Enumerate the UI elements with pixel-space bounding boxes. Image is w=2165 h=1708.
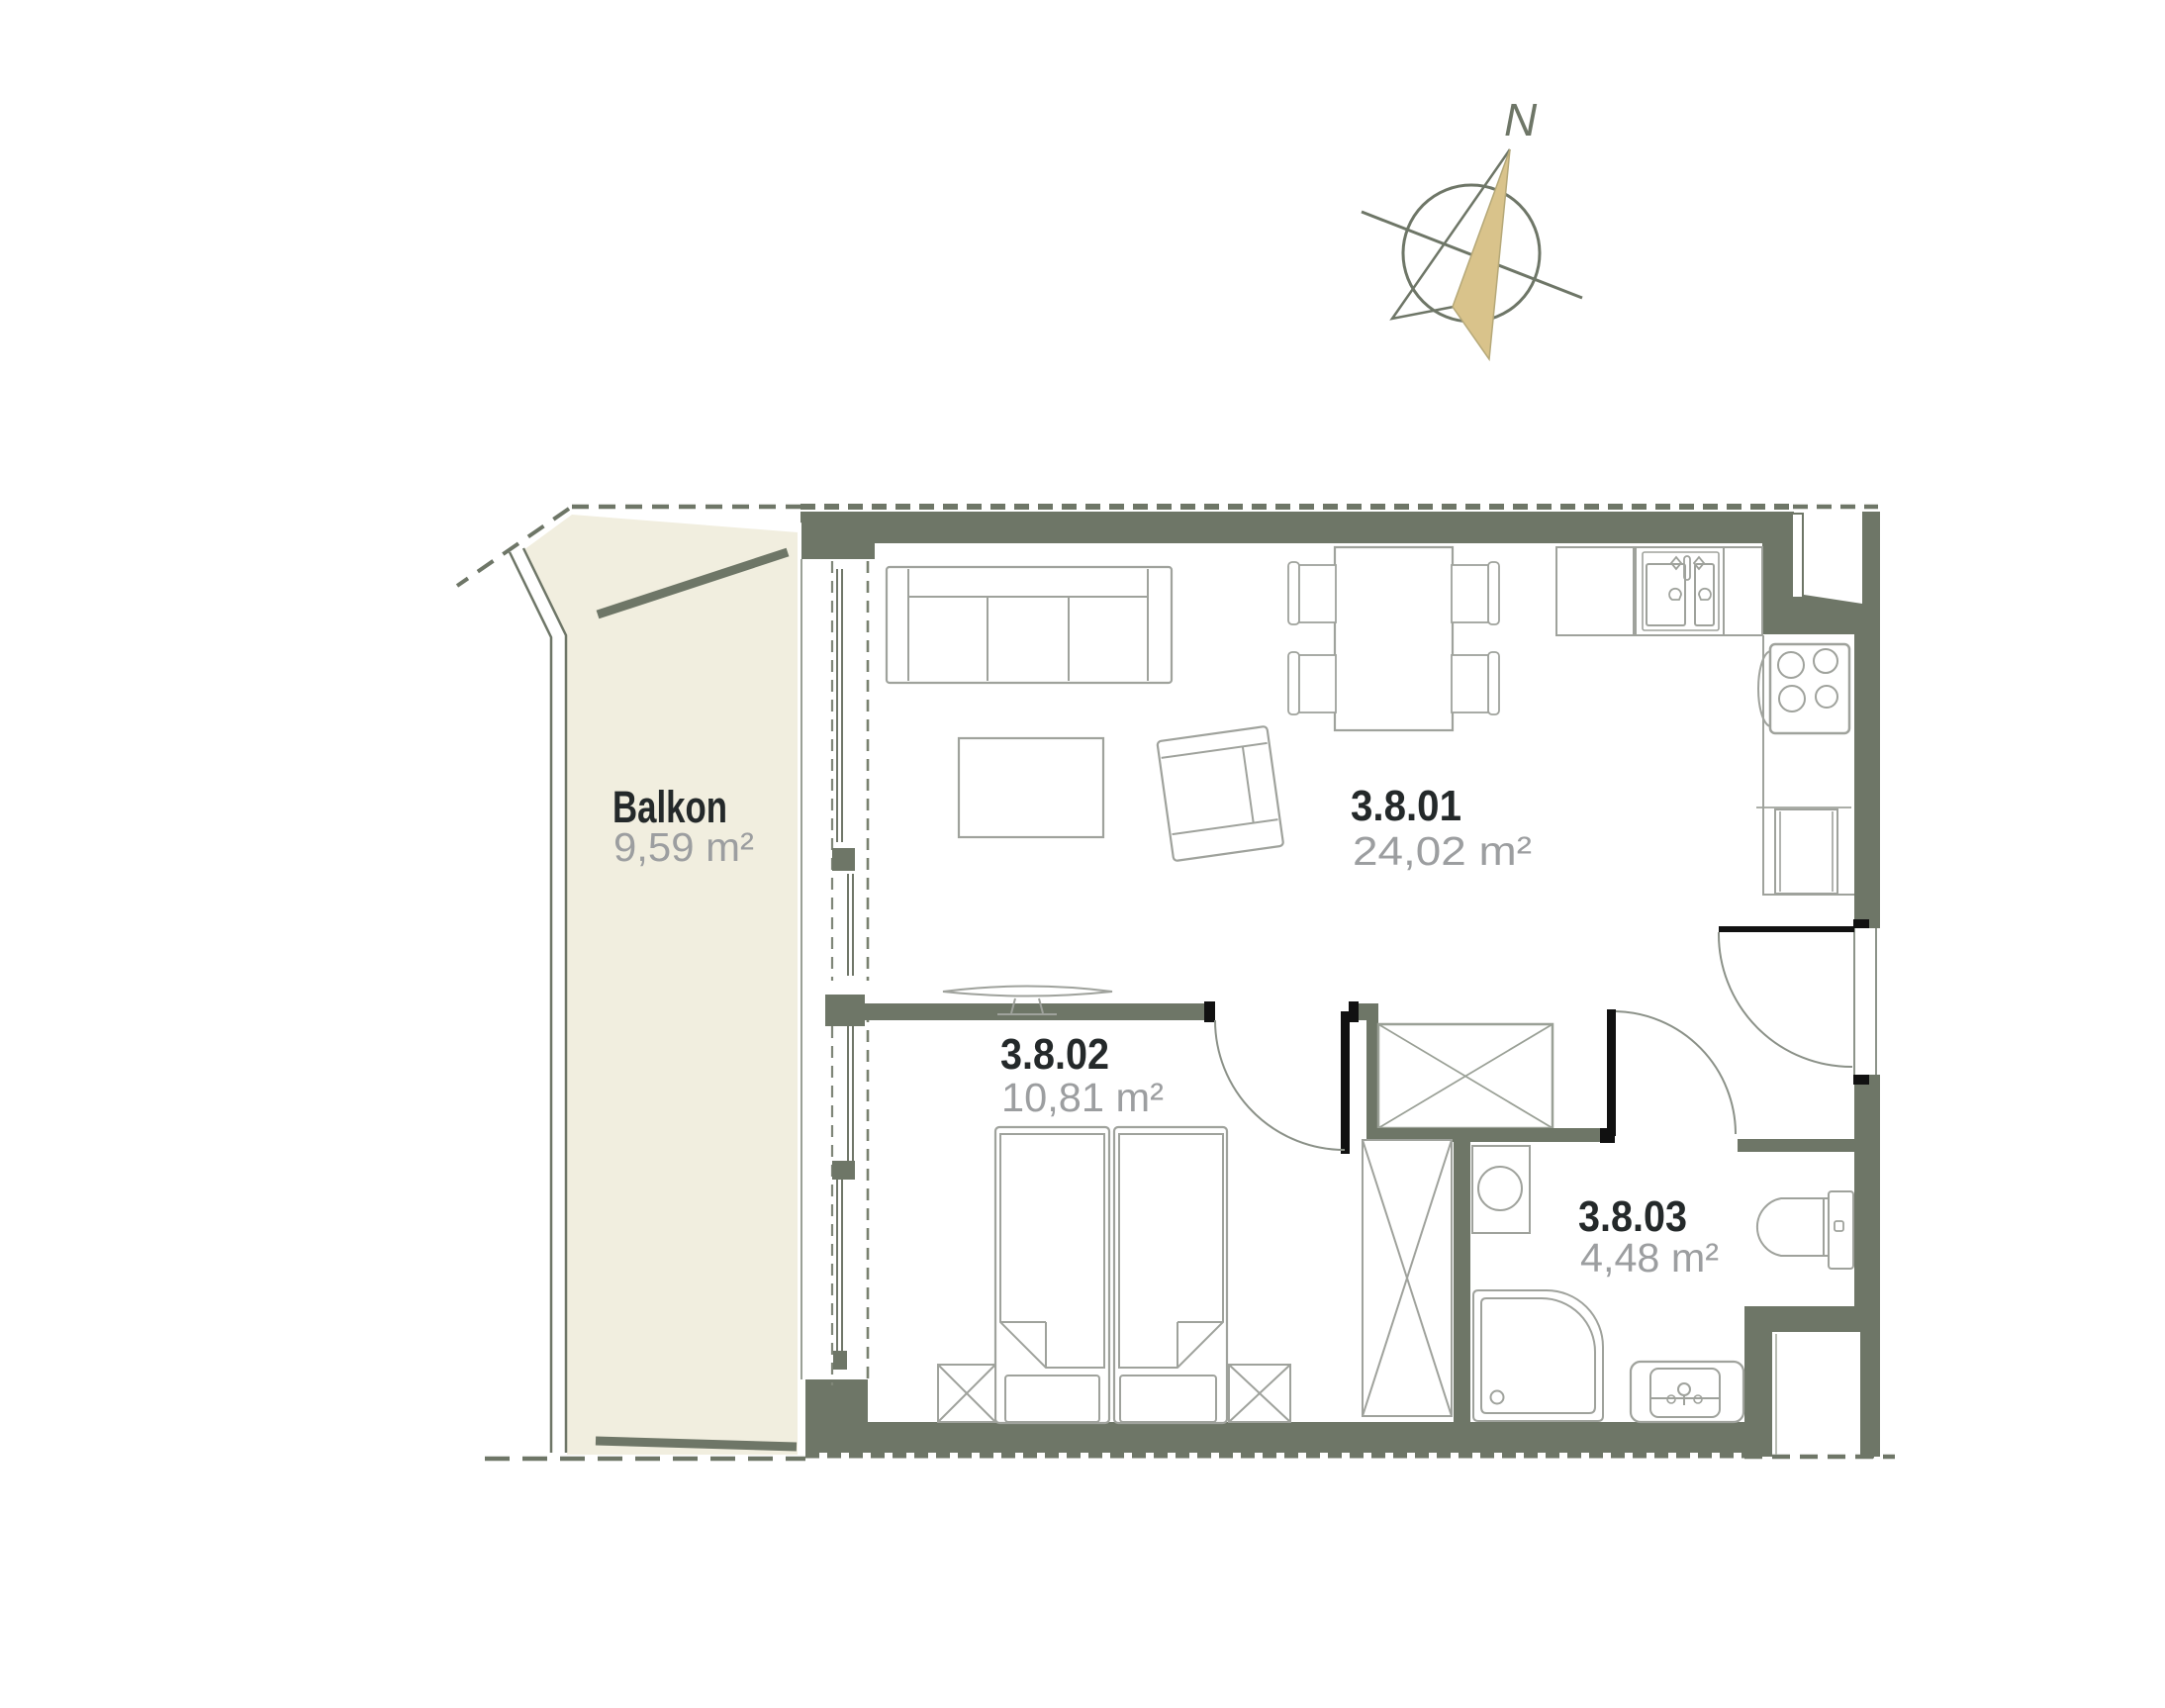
svg-text:10,81 m²: 10,81 m² [1001,1075,1164,1120]
svg-text:4,48 m²: 4,48 m² [1580,1235,1719,1281]
svg-text:9,59 m²: 9,59 m² [613,824,754,870]
svg-text:N: N [1504,94,1538,145]
svg-text:3.8.03: 3.8.03 [1578,1192,1687,1241]
svg-text:24,02 m²: 24,02 m² [1353,828,1532,874]
svg-text:3.8.01: 3.8.01 [1351,782,1461,830]
svg-text:3.8.02: 3.8.02 [1000,1030,1109,1079]
